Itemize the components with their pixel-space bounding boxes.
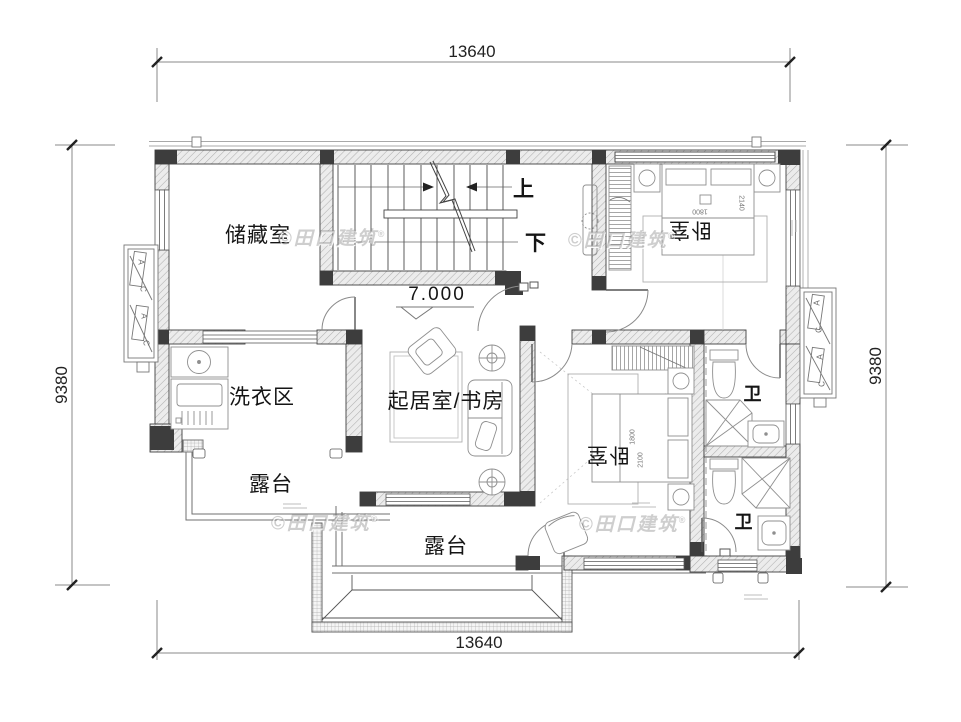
wall-foot — [330, 449, 342, 458]
watermark: ©田口建筑® — [579, 510, 688, 537]
dimension-left: 9380 — [52, 366, 72, 404]
stair-up-label: 上 — [513, 173, 535, 203]
room-label-bedroom-mid: 卧室 — [586, 441, 630, 471]
window-right-mid — [786, 404, 800, 444]
door-bath-top — [746, 344, 780, 378]
room-label-laundry: 洗衣区 — [229, 381, 295, 411]
dimension-top: 13640 — [448, 42, 495, 62]
room-label-terrace-left: 露台 — [249, 468, 293, 498]
nightstand — [754, 164, 780, 192]
door-bath-bottom — [702, 518, 736, 556]
floor-plan-drawing — [0, 0, 961, 722]
watermark: ©田口建筑® — [568, 226, 677, 253]
ac-letter: A — [140, 313, 149, 318]
washer — [171, 379, 228, 429]
dimension-right: 9380 — [866, 347, 886, 385]
toilet — [713, 471, 736, 504]
watermark-registered: ® — [371, 514, 380, 524]
bed-mid-width: 1800 — [630, 429, 637, 445]
watermark-text: ©田口建筑 — [579, 515, 679, 536]
ac-letter: C — [142, 340, 151, 346]
watermark: ©田口建筑® — [278, 224, 387, 251]
wall-foot — [193, 449, 205, 458]
armchair — [406, 325, 458, 376]
stair-down-label: 下 — [525, 227, 547, 257]
window-laundry-top — [203, 331, 317, 343]
watermark-text: ©田口建筑 — [568, 231, 668, 252]
window-bath-bottom — [718, 560, 757, 571]
bed-top-width: 1800 — [692, 208, 708, 215]
watermark-text: ©田口建筑 — [278, 229, 378, 250]
ac-letter: C — [139, 286, 148, 292]
watermark-registered: ® — [378, 229, 387, 239]
ac-letter: C — [815, 327, 824, 333]
toilet-tank — [710, 350, 738, 360]
ac-letter: A — [137, 259, 146, 264]
floor-plan-page: 储藏室 卧室 洗衣区 起居室/书房 卧室 卫 卫 露台 露台 上 下 7.000… — [0, 0, 961, 722]
window-living-south — [386, 494, 470, 505]
door-bedroom-top — [606, 290, 648, 332]
window-left — [155, 190, 169, 250]
laundry-fixtures — [171, 347, 228, 429]
watermark-text: ©田口建筑 — [271, 514, 371, 535]
stairs — [338, 161, 518, 270]
wardrobe-top — [609, 166, 631, 270]
wall-foot — [713, 573, 723, 583]
room-label-terrace-bottom: 露台 — [424, 530, 468, 560]
nightstand — [668, 484, 694, 510]
room-label-bath-bottom: 卫 — [735, 508, 754, 534]
bath-bottom-fixtures — [710, 458, 790, 550]
bed-top-length: 2140 — [738, 195, 745, 211]
watermark-registered: ® — [679, 515, 688, 525]
watermark: ©田口建筑® — [271, 509, 380, 536]
nightstand — [634, 164, 660, 192]
ac-platform-right — [800, 288, 836, 407]
level-label: 7.000 — [408, 284, 466, 306]
watermark-registered: ® — [668, 231, 677, 241]
door-storage — [322, 297, 355, 330]
ac-letter: C — [818, 381, 827, 387]
level-marker — [396, 307, 474, 319]
window-right-upper — [786, 190, 800, 286]
window-bedroom-mid-south — [584, 558, 684, 569]
bed-mid-length: 2100 — [638, 452, 645, 468]
door-bedroom-mid — [532, 344, 572, 382]
room-label-bath-top: 卫 — [744, 380, 763, 406]
toilet — [713, 362, 736, 398]
dimension-bottom: 13640 — [455, 633, 502, 653]
nightstand — [668, 368, 694, 394]
ac-letter: A — [816, 354, 825, 359]
room-label-living-study: 起居室/书房 — [388, 385, 505, 415]
ac-letter: A — [813, 300, 822, 305]
toilet-tank — [710, 459, 738, 469]
wall-foot — [758, 573, 768, 583]
